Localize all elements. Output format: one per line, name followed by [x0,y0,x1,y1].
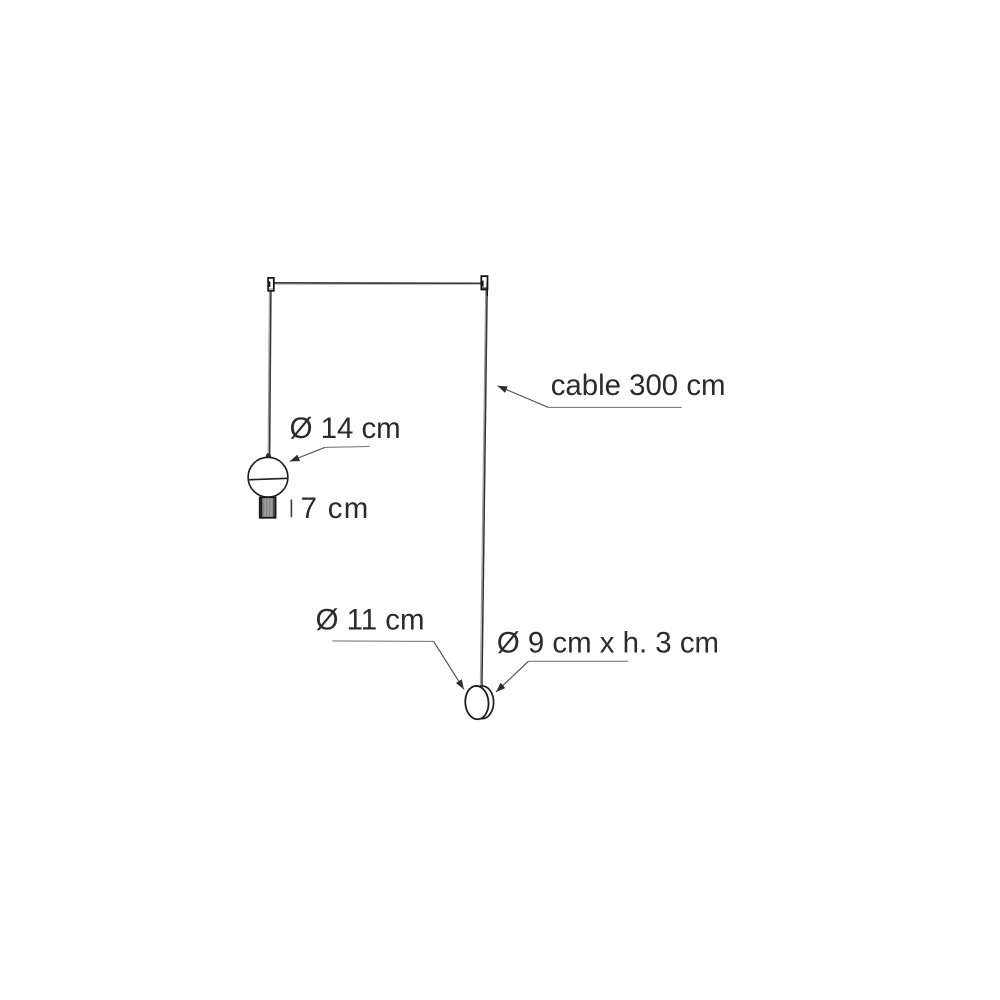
svg-text:Ø 11 cm: Ø 11 cm [316,604,425,637]
svg-text:7 cm: 7 cm [301,492,370,525]
svg-text:cable 300 cm: cable 300 cm [551,369,726,402]
svg-text:Ø 14 cm: Ø 14 cm [290,412,401,445]
svg-text:Ø 9 cm x h. 3 cm: Ø 9 cm x h. 3 cm [497,627,719,660]
